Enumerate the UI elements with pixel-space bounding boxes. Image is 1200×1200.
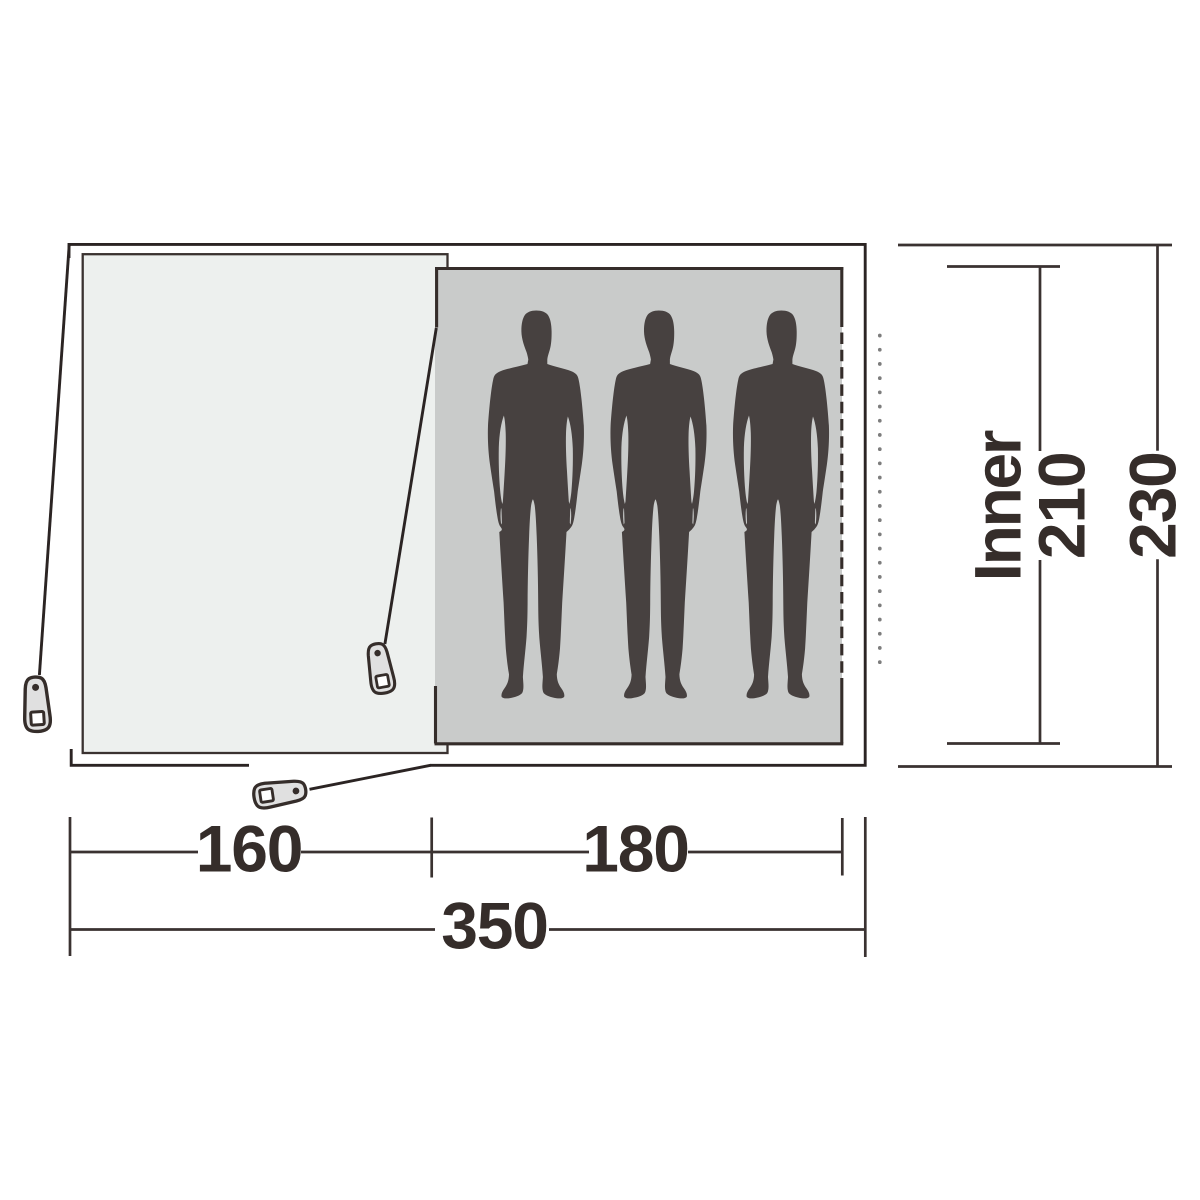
svg-text:Inner: Inner: [961, 430, 1035, 581]
svg-text:350: 350: [441, 889, 548, 963]
svg-text:230: 230: [1116, 452, 1190, 559]
svg-text:210: 210: [1025, 453, 1099, 560]
svg-text:160: 160: [196, 812, 303, 886]
svg-text:180: 180: [582, 812, 689, 886]
